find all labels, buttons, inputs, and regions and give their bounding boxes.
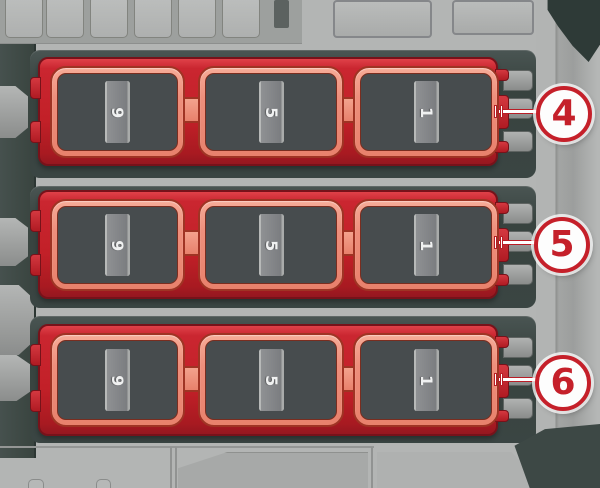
block-side-tab [30, 344, 41, 366]
block-side-tab [30, 77, 41, 99]
fuse-group: 8 7 6 5 [198, 66, 344, 158]
top-connector-tab [46, 0, 84, 38]
panel-bump [28, 479, 44, 488]
callout-circle-4: 4 [536, 86, 592, 142]
fuse-slot: 1 [414, 349, 439, 411]
callout-circle-5: 5 [534, 217, 590, 273]
top-connector-tab [5, 0, 43, 38]
panel-seam [0, 446, 374, 448]
rail-key-tab [0, 218, 28, 266]
fuse-number: 9 [108, 107, 127, 118]
callout-label: 5 [549, 227, 574, 263]
leader-anchor [494, 105, 497, 118]
rail-key-tab [0, 355, 30, 401]
block-side-tab [30, 121, 41, 143]
leader-line [498, 240, 536, 245]
fuse-slot: 9 [105, 214, 130, 276]
block-side-tab [30, 210, 41, 232]
leader-line [498, 109, 540, 114]
relay-slot [333, 0, 432, 38]
fuse-number: 5 [261, 375, 280, 386]
fuse-number: 1 [416, 107, 435, 118]
fuse-slot: 5 [259, 214, 284, 276]
leader-anchor [500, 236, 503, 249]
fuse-group: 4 3 2 1 [353, 333, 499, 427]
fuse-group: 4 3 2 1 [353, 66, 499, 158]
fuse-block-row-1: 12 11 10 9 8 7 6 5 4 3 2 1 [38, 57, 498, 166]
relay-slot [452, 0, 534, 35]
fuse-slot: 1 [414, 81, 439, 143]
top-connector-tab [90, 0, 128, 38]
panel-recess [178, 452, 368, 488]
fuse-slot: 5 [259, 81, 284, 143]
fuse-block-row-2: 12 11 10 9 8 7 6 5 4 3 2 1 [38, 190, 498, 299]
fuse-number: 9 [108, 375, 127, 386]
panel-bump [96, 479, 111, 488]
fuse-slot: 9 [105, 349, 130, 411]
callout-label: 4 [551, 96, 576, 132]
block-side-tab [30, 254, 41, 276]
fuse-group: 12 11 10 9 [50, 66, 185, 158]
fuse-number: 1 [416, 240, 435, 251]
leader-line [498, 377, 537, 382]
fuse-number: 9 [108, 240, 127, 251]
top-connector-tab [134, 0, 172, 38]
panel-seam [170, 447, 172, 488]
panel-seam [371, 447, 373, 488]
callout-circle-6: 6 [535, 355, 591, 411]
fuse-number: 5 [261, 240, 280, 251]
block-side-tab [30, 390, 41, 412]
top-connector-tab [222, 0, 260, 38]
leader-anchor [500, 373, 503, 386]
fuse-group: 12 11 10 9 [50, 199, 185, 291]
leader-anchor [494, 236, 497, 249]
fuse-group: 8 7 6 5 [198, 333, 344, 427]
fuse-slot: 5 [259, 349, 284, 411]
fuse-box-diagram: 12 11 10 9 8 7 6 5 4 3 2 1 4 [0, 0, 600, 488]
callout-label: 6 [550, 365, 575, 401]
fuse-slot: 1 [414, 214, 439, 276]
fuse-group: 8 7 6 5 [198, 199, 344, 291]
fuse-block-row-3: 12 11 10 9 8 7 6 5 4 3 2 1 [38, 324, 498, 436]
fuse-number: 1 [416, 375, 435, 386]
fuse-group: 12 11 10 9 [50, 333, 185, 427]
leader-anchor [500, 105, 503, 118]
rail-key-tab [0, 285, 34, 355]
rail-key-tab [0, 86, 28, 138]
panel-notch [274, 0, 289, 28]
leader-anchor [494, 373, 497, 386]
fuse-group: 4 3 2 1 [353, 199, 499, 291]
top-connector-tab [178, 0, 216, 38]
fuse-number: 5 [261, 107, 280, 118]
panel-seam [175, 447, 177, 488]
fuse-slot: 9 [105, 81, 130, 143]
